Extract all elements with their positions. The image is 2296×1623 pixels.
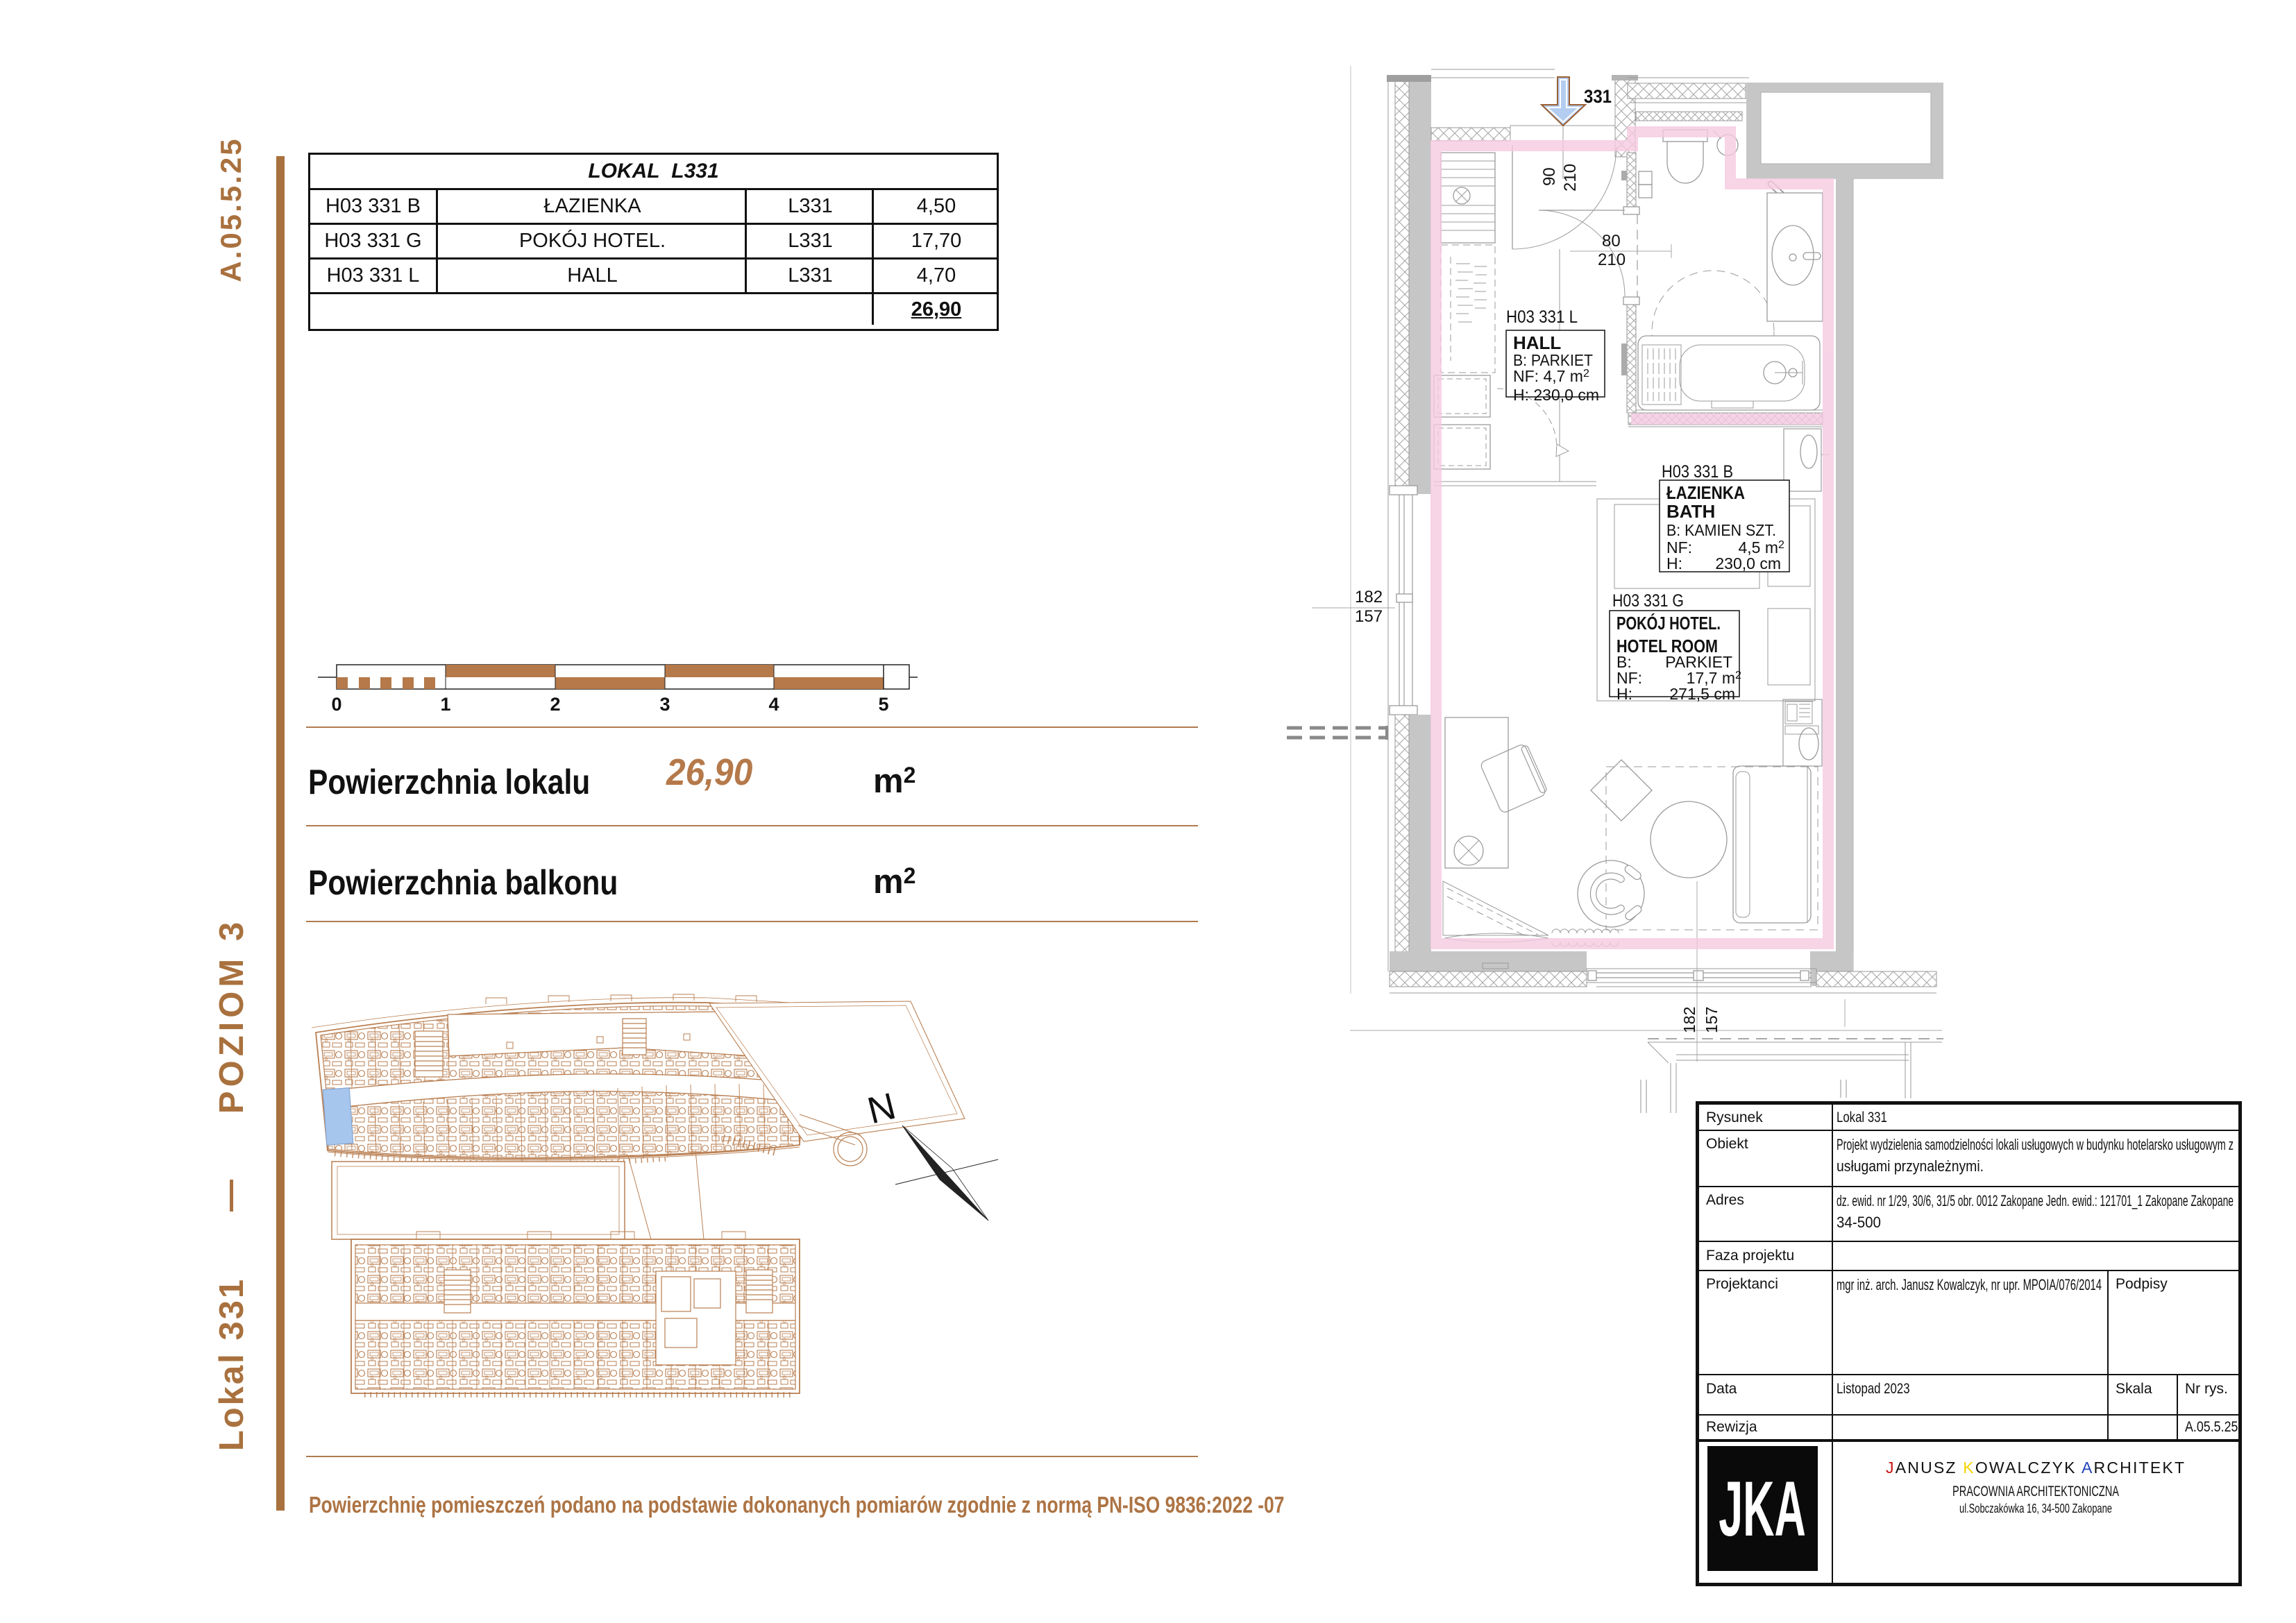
svg-text:mgr inż. arch. Janusz Kowalczy: mgr inż. arch. Janusz Kowalczyk, nr upr.… [1837, 1276, 2102, 1293]
svg-text:1: 1 [440, 694, 450, 715]
svg-text:5: 5 [878, 694, 888, 715]
svg-text:34-500: 34-500 [1837, 1214, 1881, 1231]
svg-text:80: 80 [1602, 232, 1621, 250]
svg-text:H03 331 B: H03 331 B [1662, 462, 1733, 482]
svg-text:3: 3 [659, 694, 670, 715]
svg-text:PRACOWNIA ARCHITEKTONICZNA: PRACOWNIA ARCHITEKTONICZNA [1952, 1484, 2119, 1499]
svg-text:ŁAZIENKA: ŁAZIENKA [1666, 482, 1745, 503]
svg-text:BATH: BATH [1666, 501, 1715, 522]
svg-text:271,5 cm: 271,5 cm [1669, 685, 1735, 703]
svg-text:182: 182 [1680, 1007, 1698, 1033]
svg-text:2: 2 [550, 694, 560, 715]
svg-text:H03 331 G: H03 331 G [1612, 591, 1684, 611]
svg-text:dz. ewid. nr 1/29, 30/6, 31/5: dz. ewid. nr 1/29, 30/6, 31/5 obr. 0012 … [1837, 1192, 2234, 1209]
svg-text:HALL: HALL [1513, 332, 1561, 353]
svg-text:210: 210 [1561, 164, 1580, 192]
svg-text:182: 182 [1355, 588, 1383, 606]
svg-text:NF: 4,7 m2: NF: 4,7 m2 [1513, 367, 1589, 385]
svg-text:H:: H: [1617, 685, 1632, 703]
svg-text:ul.Sobczakówka 16, 34-500 Zako: ul.Sobczakówka 16, 34-500 Zakopane [1959, 1502, 2112, 1515]
svg-text:230,0 cm: 230,0 cm [1715, 554, 1781, 572]
svg-text:90: 90 [1540, 167, 1559, 186]
svg-text:2: 2 [1735, 670, 1741, 681]
svg-text:usługami przynależnymi.: usługami przynależnymi. [1837, 1157, 1984, 1175]
svg-text:331: 331 [1584, 86, 1612, 107]
svg-text:JANUSZ KOWALCZYK ARCHITEKT: JANUSZ KOWALCZYK ARCHITEKT [1886, 1459, 2186, 1477]
svg-text:H03 331 L: H03 331 L [1506, 307, 1578, 327]
svg-text:B: KAMIEN SZT.: B: KAMIEN SZT. [1666, 521, 1776, 539]
svg-text:H: 230,0 cm: H: 230,0 cm [1513, 386, 1599, 404]
svg-text:210: 210 [1598, 250, 1626, 269]
svg-text:4: 4 [768, 694, 779, 715]
svg-text:2: 2 [1778, 539, 1784, 551]
svg-text:Projekt wydzielenia samodzieln: Projekt wydzielenia samodzielności lokal… [1837, 1136, 2234, 1153]
svg-text:H:: H: [1666, 554, 1682, 572]
svg-text:157: 157 [1355, 607, 1383, 626]
svg-text:0: 0 [331, 694, 341, 715]
svg-text:POKÓJ HOTEL.: POKÓJ HOTEL. [1617, 613, 1721, 634]
svg-text:157: 157 [1703, 1007, 1721, 1033]
